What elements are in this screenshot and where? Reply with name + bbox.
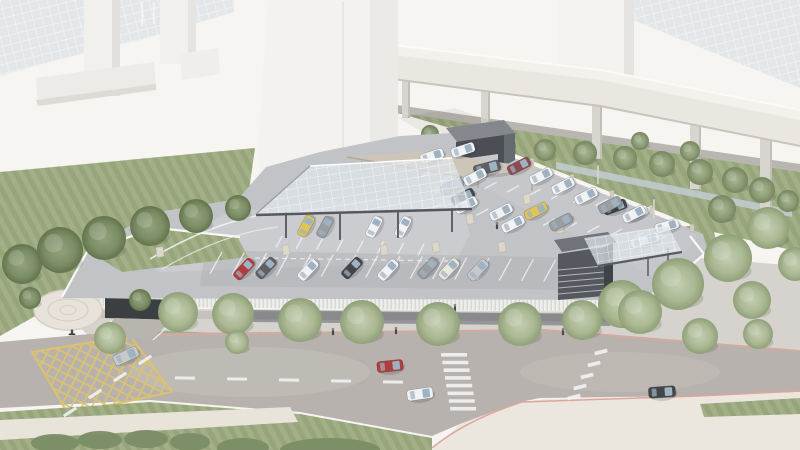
tree-highlight	[739, 287, 754, 302]
tree-highlight	[634, 135, 641, 142]
tree-highlight	[617, 150, 627, 160]
concrete-block	[156, 247, 164, 258]
pedestrian	[562, 328, 565, 335]
tree	[573, 141, 597, 165]
tree	[733, 281, 771, 319]
tree	[618, 290, 662, 334]
tree-highlight	[577, 145, 587, 155]
tree	[631, 132, 649, 150]
tree-highlight	[688, 323, 702, 337]
road-light-patch	[520, 352, 720, 392]
crosswalk-bar	[445, 376, 471, 380]
lane-dash	[175, 376, 195, 379]
tree-highlight	[781, 193, 790, 202]
crosswalk-bar	[450, 407, 476, 411]
crosswalk-bar	[442, 361, 468, 365]
tree	[722, 167, 748, 193]
tree-highlight	[660, 266, 681, 287]
rendering-canvas	[0, 0, 800, 450]
tree	[416, 302, 460, 346]
car-rear-window	[380, 363, 385, 371]
tree-highlight	[229, 334, 239, 344]
concrete-block	[466, 214, 474, 225]
tree-highlight	[285, 305, 303, 323]
pedestrian-head	[454, 304, 457, 307]
tree-highlight	[568, 306, 584, 322]
tree-highlight	[753, 181, 763, 191]
wall-post	[610, 191, 614, 198]
tree	[747, 207, 789, 249]
tree	[680, 141, 700, 161]
tree-highlight	[136, 212, 152, 228]
tree	[687, 159, 713, 185]
tree	[777, 190, 799, 212]
concrete-block	[282, 245, 290, 256]
lane-dash	[383, 380, 403, 383]
tree	[682, 318, 718, 354]
tree-highlight	[133, 292, 142, 301]
tree-highlight	[184, 204, 198, 218]
lane-dash	[279, 378, 299, 381]
tree	[94, 322, 126, 354]
tree-highlight	[726, 171, 736, 181]
tree	[743, 319, 773, 349]
tree	[749, 177, 775, 203]
pedestrian-head	[496, 222, 499, 225]
car-windshield	[392, 361, 400, 370]
tree-highlight	[423, 309, 441, 327]
tree	[562, 300, 602, 340]
tree-highlight	[783, 252, 797, 266]
cyclist-body	[71, 330, 73, 335]
tower-shade-face	[370, 0, 398, 152]
tree-highlight	[99, 327, 112, 340]
tree	[19, 287, 41, 309]
wall-post	[690, 225, 694, 232]
tree-highlight	[44, 234, 62, 252]
tree	[130, 206, 170, 246]
pedestrian-body	[332, 330, 334, 335]
pedestrian	[496, 222, 499, 229]
pedestrian	[395, 327, 398, 334]
tree	[498, 302, 542, 346]
tree-highlight	[164, 298, 180, 314]
tree	[82, 216, 126, 260]
light-pole-head	[653, 197, 656, 200]
crosswalk-bar	[444, 368, 470, 372]
tree	[37, 227, 83, 273]
tree-highlight	[8, 250, 24, 266]
tree-highlight	[625, 297, 643, 315]
tree-highlight	[538, 142, 547, 151]
lane-dash	[227, 377, 247, 380]
car-windshield	[422, 388, 430, 398]
tree-highlight	[505, 309, 523, 327]
tree	[708, 195, 736, 223]
tree-highlight	[229, 199, 239, 209]
lane-dash	[331, 379, 351, 382]
concrete-block	[380, 245, 388, 256]
tree	[158, 292, 198, 332]
tree	[534, 139, 556, 161]
tree-highlight	[219, 299, 236, 316]
concrete-block	[432, 242, 440, 253]
crosswalk-bar	[448, 392, 474, 396]
pedestrian-body	[395, 329, 397, 334]
tree	[2, 244, 42, 284]
car-rear-window	[651, 388, 656, 396]
tree	[225, 195, 251, 221]
tree-highlight	[653, 155, 663, 165]
light-pole-head	[597, 163, 600, 166]
tree-highlight	[347, 307, 365, 325]
car-windshield	[664, 387, 672, 396]
crosswalk-bar	[449, 399, 475, 403]
tree	[704, 234, 752, 282]
tree-highlight	[712, 241, 731, 260]
tree	[340, 300, 384, 344]
tree-highlight	[748, 324, 760, 336]
tree	[212, 293, 254, 335]
pedestrian-body	[496, 224, 498, 229]
tree-highlight	[683, 144, 691, 152]
rendering-stage	[0, 0, 800, 450]
tree-highlight	[712, 199, 723, 210]
concrete-block	[523, 194, 531, 205]
tree	[129, 289, 151, 311]
pedestrian-body	[562, 330, 564, 335]
tree	[179, 199, 213, 233]
pedestrian	[332, 328, 335, 335]
tree-highlight	[23, 290, 32, 299]
pedestrian-head	[395, 327, 398, 330]
tree-highlight	[89, 223, 107, 241]
tree	[225, 330, 249, 354]
tree-highlight	[754, 213, 771, 230]
concrete-block	[498, 242, 506, 253]
tree-highlight	[691, 163, 701, 173]
tree	[652, 258, 704, 310]
tree	[649, 151, 675, 177]
tree	[613, 146, 637, 170]
pedestrian-head	[332, 328, 335, 331]
crosswalk-bar	[441, 353, 467, 357]
tree	[278, 298, 322, 342]
crosswalk-bar	[446, 384, 472, 388]
